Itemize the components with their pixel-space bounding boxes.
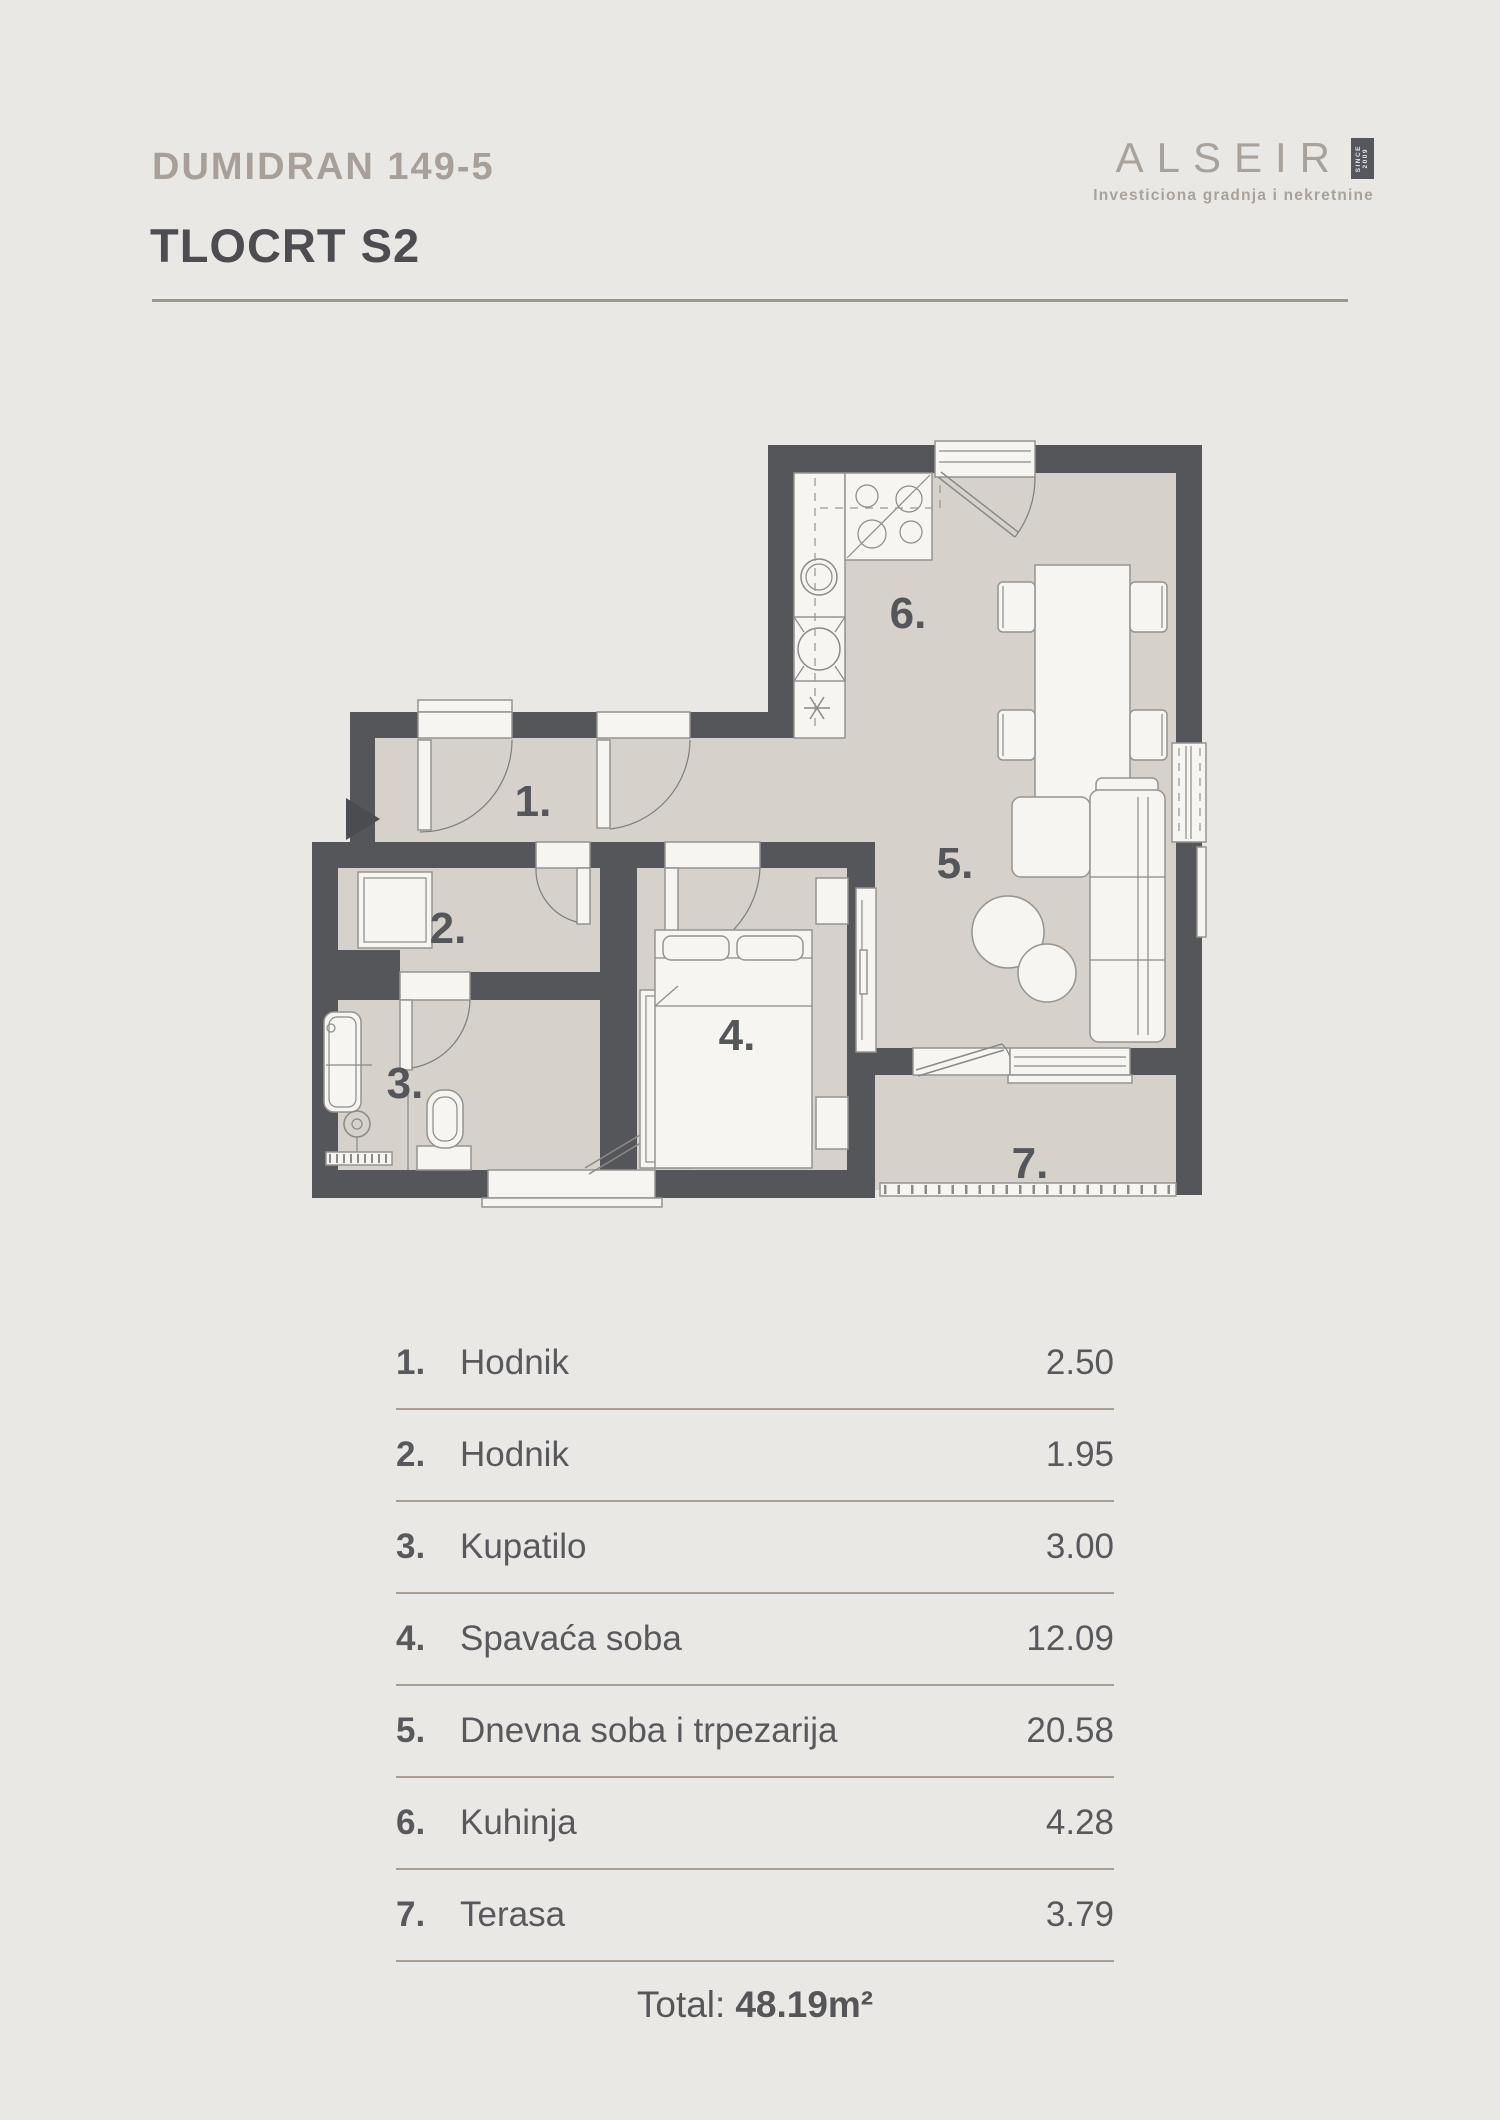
- legend-row-number: 3.: [396, 1527, 460, 1567]
- room-label-5: 5.: [937, 839, 974, 888]
- room-label-7: 7.: [1012, 1139, 1049, 1188]
- legend-row-number: 5.: [396, 1711, 460, 1751]
- legend-row-label: Terasa: [460, 1895, 1046, 1935]
- room-label-3: 3.: [387, 1059, 424, 1108]
- page-title: TLOCRT S2: [150, 218, 420, 273]
- legend-row-label: Dnevna soba i trpezarija: [460, 1711, 1026, 1751]
- legend-row-label: Hodnik: [460, 1435, 1046, 1475]
- terrace-window: [1008, 1048, 1132, 1083]
- closet: [358, 872, 432, 948]
- logo-tagline: Investiciona gradnja i nekretnine: [1093, 187, 1374, 205]
- legend-row: 4. Spavaća soba 12.09: [396, 1594, 1114, 1686]
- room-legend: 1. Hodnik 2.50 2. Hodnik 1.95 3. Kupatil…: [396, 1318, 1114, 1962]
- legend-row: 3. Kupatilo 3.00: [396, 1502, 1114, 1594]
- legend-row-value: 3.79: [1046, 1895, 1114, 1935]
- logo-name: ALSEIR: [1116, 138, 1343, 178]
- legend-row: 1. Hodnik 2.50: [396, 1318, 1114, 1410]
- total-value: 48.19m²: [735, 1984, 873, 2026]
- since-year: 2009: [1363, 148, 1370, 168]
- floor-plan-page: DUMIDRAN 149-5 TLOCRT S2 ALSEIR SINCE 20…: [0, 0, 1500, 2120]
- total-label: Total:: [637, 1984, 725, 2026]
- legend-row-label: Kupatilo: [460, 1527, 1046, 1567]
- legend-row-value: 12.09: [1026, 1619, 1114, 1659]
- legend-row-value: 3.00: [1046, 1527, 1114, 1567]
- radiator: [326, 1152, 392, 1165]
- kitchen-counter: [794, 473, 845, 738]
- legend-row-value: 2.50: [1046, 1343, 1114, 1383]
- room-label-6: 6.: [890, 589, 927, 638]
- legend-row-label: Kuhinja: [460, 1803, 1046, 1843]
- room-label-2: 2.: [430, 904, 467, 953]
- legend-row: 7. Terasa 3.79: [396, 1870, 1114, 1962]
- legend-row-number: 7.: [396, 1895, 460, 1935]
- header-divider: [152, 299, 1348, 302]
- legend-row-number: 4.: [396, 1619, 460, 1659]
- total-area: Total: 48.19m²: [396, 1975, 1114, 2035]
- legend-row-label: Spavaća soba: [460, 1619, 1026, 1659]
- company-logo: ALSEIR SINCE 2009 Investiciona gradnja i…: [1093, 138, 1374, 205]
- legend-row: 5. Dnevna soba i trpezarija 20.58: [396, 1686, 1114, 1778]
- legend-row-number: 6.: [396, 1803, 460, 1843]
- stove: [845, 473, 932, 560]
- room-label-1: 1.: [515, 777, 552, 826]
- washing-machine: [794, 617, 845, 681]
- project-name: DUMIDRAN 149-5: [152, 146, 495, 189]
- terrace-door: [913, 1044, 1011, 1076]
- room-label-4: 4.: [719, 1011, 756, 1060]
- tv-board: [856, 888, 876, 1052]
- legend-row-value: 1.95: [1046, 1435, 1114, 1475]
- legend-row: 6. Kuhinja 4.28: [396, 1778, 1114, 1870]
- legend-row-value: 20.58: [1026, 1711, 1114, 1751]
- since-badge: SINCE 2009: [1351, 138, 1374, 179]
- floor-plan-drawing: 1. 2. 3. 4. 5. 6. 7.: [300, 430, 1210, 1210]
- legend-row-label: Hodnik: [460, 1343, 1046, 1383]
- legend-row: 2. Hodnik 1.95: [396, 1410, 1114, 1502]
- legend-row-number: 2.: [396, 1435, 460, 1475]
- legend-row-value: 4.28: [1046, 1803, 1114, 1843]
- legend-row-number: 1.: [396, 1343, 460, 1383]
